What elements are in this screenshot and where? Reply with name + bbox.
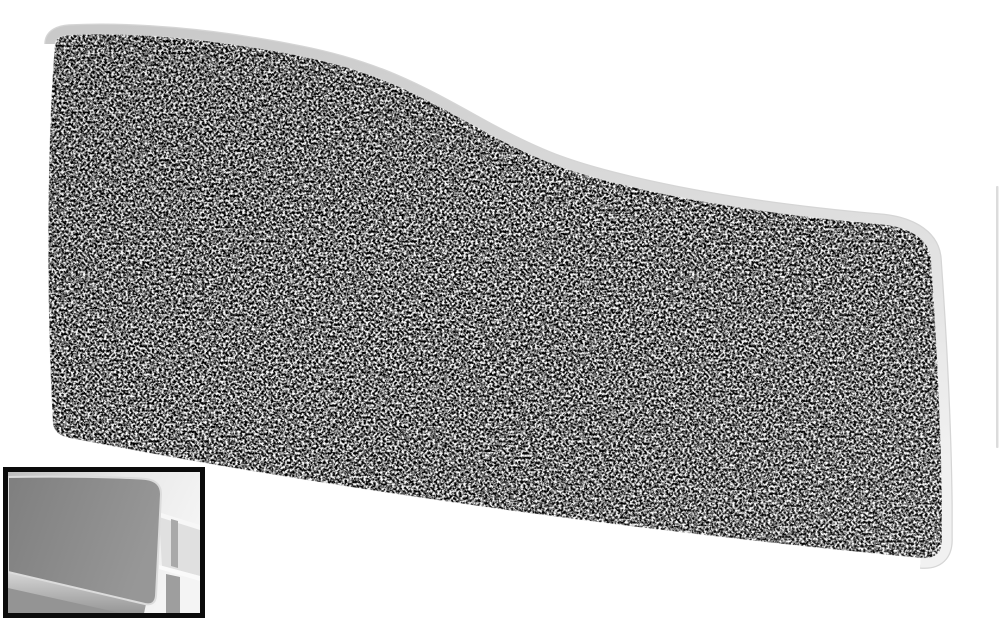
thumbnail-desk-leg-front xyxy=(166,574,180,613)
thumbnail-photo xyxy=(8,472,200,618)
thumbnail-desk-leg-rear xyxy=(171,519,178,568)
product-image xyxy=(0,0,1000,619)
alternate-view-thumbnail[interactable] xyxy=(3,467,205,618)
adjacent-image-edge xyxy=(996,186,999,448)
product-photo-stage xyxy=(0,0,1000,619)
